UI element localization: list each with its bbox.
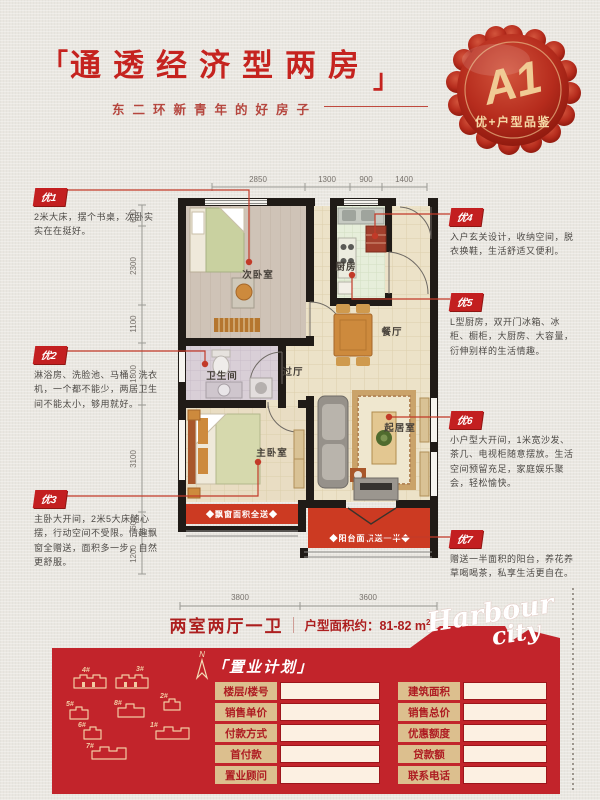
title-bracket-close: 」: [373, 66, 399, 92]
purchase-plan-title: 「置业计划」: [212, 656, 314, 677]
flyer-page: { "colors":{"accent_red":"#c5231f","foot…: [0, 0, 600, 800]
dim-left-2: 2300: [129, 257, 138, 275]
callout-4-badge: 优4: [449, 208, 483, 226]
page-title: 「 通透经济型两房 」: [42, 50, 399, 92]
site-plan-map: 4# 3# 2# 5# 8# 6# 1# 7#: [60, 658, 200, 780]
bath-sink-icon: [206, 382, 242, 398]
cell-loan: [463, 745, 547, 763]
cell-unit-price: [280, 703, 380, 721]
callout-2-id: 优2: [40, 351, 57, 362]
page-subtitle: 东二环新青年的好房子: [112, 99, 317, 118]
callout-4-id: 优4: [456, 213, 473, 224]
site-label-4: 4#: [81, 667, 90, 674]
washer-icon: [250, 378, 272, 398]
room-label-dining: 餐厅: [380, 326, 402, 338]
purchase-plan-panel: Harbour city N 「置业计划」 楼层/楼号建筑面积 销售单价销售总价…: [52, 648, 560, 794]
callout-6: 优6 小户型大开间，1米宽沙发、茶几、电视柜随意摆放。生活空间预留充足，家庭娱乐…: [450, 411, 574, 491]
radiator-icon: [214, 318, 260, 332]
seal-label: 优+户型品鉴: [475, 114, 551, 129]
compass-n-label: N: [199, 650, 205, 659]
a1-seal-badge: A1 优+户型品鉴: [434, 20, 590, 156]
table-gap: [383, 745, 395, 763]
th-payment: 付款方式: [215, 724, 277, 742]
site-label-3: 3#: [136, 666, 144, 673]
callout-1-id: 优1: [40, 193, 57, 204]
callout-7-text: 赠送一半面积的阳台，养花养草喝喝茶，私享生活更自在。: [450, 552, 574, 581]
dim-left-5: 3100: [129, 450, 138, 468]
dim-bottom-2: 3600: [359, 593, 377, 602]
callout-1: 优1 2米大床，摆个书桌，次卧实实在在挺好。: [34, 188, 158, 239]
bed2-desk-icon: [232, 278, 254, 308]
kitchen-sink-icon: [338, 208, 384, 224]
table-gap: [383, 703, 395, 721]
callout-7-id: 优7: [456, 535, 473, 546]
site-label-8: 8#: [114, 700, 122, 707]
table-gap: [383, 724, 395, 742]
th-unit-price: 销售单价: [215, 703, 277, 721]
cell-consultant: [280, 766, 380, 784]
summary-divider: [293, 617, 294, 633]
th-consultant: 置业顾问: [215, 766, 277, 784]
dim-top-2: 1300: [318, 175, 336, 184]
edge-disclaimer-text: [572, 588, 574, 790]
callout-3-text: 主卧大开间，2米5大床随心摆，行动空间不受限。情趣飘窗全赠送，面积多一步，自然更…: [34, 512, 158, 570]
tv-stand-icon: [354, 478, 398, 500]
page-title-text: 通透经济型两房: [70, 50, 371, 81]
dim-bottom-1: 3800: [231, 593, 249, 602]
dim-top-3: 900: [359, 175, 373, 184]
cell-phone: [463, 766, 547, 784]
callout-3: 优3 主卧大开间，2米5大床随心摆，行动空间不受限。情趣飘窗全赠送，面积多一步，…: [34, 490, 158, 570]
th-build-area: 建筑面积: [398, 682, 460, 700]
callout-2: 优2 淋浴房、洗脸池、马桶、洗衣机，一个都不能少，两居卫生间不能太小，够用就好。: [34, 346, 158, 411]
callout-1-badge: 优1: [33, 188, 67, 206]
th-total-price: 销售总价: [398, 703, 460, 721]
callout-4: 优4 入户玄关设计，收纳空间，脱衣换鞋，生活舒适又便利。: [450, 208, 574, 259]
room-count-label: 两室两厅一卫: [169, 612, 283, 637]
callout-7: 优7 赠送一半面积的阳台，养花养草喝喝茶，私享生活更自在。: [450, 530, 574, 581]
purchase-plan-table: 楼层/楼号建筑面积 销售单价销售总价 付款方式优惠额度 首付款贷款额 置业顾问联…: [215, 682, 547, 784]
callout-2-text: 淋浴房、洗脸池、马桶、洗衣机，一个都不能少，两居卫生间不能太小，够用就好。: [34, 368, 158, 411]
wardrobe-icon: [294, 430, 304, 488]
th-discount: 优惠额度: [398, 724, 460, 742]
site-label-5: 5#: [66, 701, 74, 708]
title-bracket-open: 「: [42, 50, 68, 76]
coffee-table-icon: [372, 412, 396, 464]
site-label-6: 6#: [78, 722, 86, 729]
cell-down-payment: [280, 745, 380, 763]
subtitle-rule: [324, 106, 428, 107]
callout-3-id: 优3: [40, 495, 57, 506]
room-label-hall: 过厅: [282, 366, 303, 378]
table-gap: [383, 766, 395, 784]
callout-4-text: 入户玄关设计，收纳空间，脱衣换鞋，生活舒适又便利。: [450, 230, 574, 259]
table-gap: [383, 682, 395, 700]
cell-build-area: [463, 682, 547, 700]
th-loan: 贷款额: [398, 745, 460, 763]
cell-floor-no: [280, 682, 380, 700]
unit-area-text: 户型面积约：81-82 m: [304, 619, 426, 633]
cell-discount: [463, 724, 547, 742]
callout-5-text: L型厨房，双开门冰箱、冰柜、橱柜，大厨房、大容量，衍伸别样的生活情趣。: [450, 315, 574, 358]
callout-7-badge: 优7: [449, 530, 483, 548]
site-label-7: 7#: [86, 743, 94, 750]
callout-6-text: 小户型大开间，1米宽沙发、茶几、电视柜随意摆放。生活空间预留充足，家庭娱乐聚会，…: [450, 433, 574, 491]
bay-gift-label: ◆飘窗面积全送◆: [205, 509, 278, 519]
th-down-payment: 首付款: [215, 745, 277, 763]
cell-total-price: [463, 703, 547, 721]
callout-6-badge: 优6: [449, 411, 483, 429]
th-phone: 联系电话: [398, 766, 460, 784]
sofa-icon: [318, 396, 348, 488]
site-label-2: 2#: [159, 693, 168, 700]
bed2-bed-icon: [190, 208, 244, 272]
room-label-bathroom: 卫生间: [206, 370, 238, 382]
room-label-living: 起居室: [383, 422, 416, 434]
callout-3-badge: 优3: [33, 490, 67, 508]
cell-payment: [280, 724, 380, 742]
dim-left-3: 1100: [129, 315, 138, 333]
callout-1-text: 2米大床，摆个书桌，次卧实实在在挺好。: [34, 210, 158, 239]
callout-5-badge: 优5: [449, 293, 483, 311]
callout-6-id: 优6: [456, 416, 473, 427]
room-label-kitchen: 厨房: [335, 261, 356, 273]
callout-5-id: 优5: [456, 298, 473, 309]
dim-top-1: 2850: [249, 175, 267, 184]
callout-5: 优5 L型厨房，双开门冰箱、冰柜、橱柜，大厨房、大容量，衍伸别样的生活情趣。: [450, 293, 574, 358]
room-label-master: 主卧室: [256, 447, 288, 459]
th-floor-no: 楼层/楼号: [215, 682, 277, 700]
site-label-1: 1#: [150, 722, 158, 729]
dim-top-4: 1400: [395, 175, 413, 184]
callout-2-badge: 优2: [33, 346, 67, 364]
room-label-bedroom2: 次卧室: [242, 269, 274, 281]
